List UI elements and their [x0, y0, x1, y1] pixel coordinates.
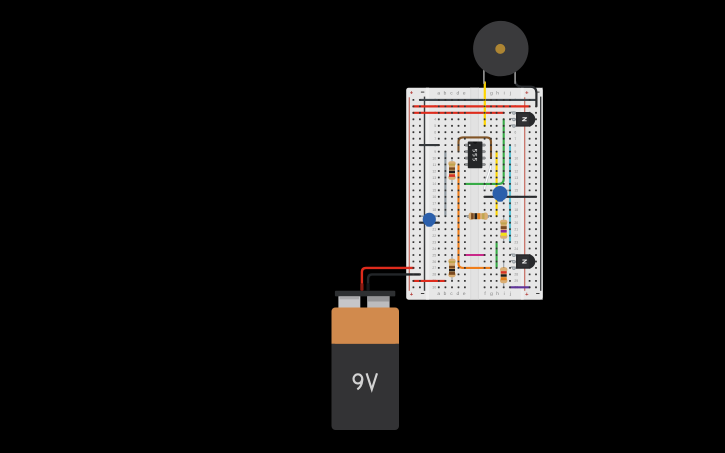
svg-text:22: 22: [432, 234, 436, 238]
svg-text:19: 19: [514, 215, 518, 219]
svg-text:26: 26: [432, 260, 436, 264]
svg-text:24: 24: [432, 247, 436, 251]
svg-text:14: 14: [514, 182, 518, 186]
svg-text:6: 6: [514, 131, 516, 135]
svg-text:15: 15: [432, 189, 436, 193]
svg-text:8: 8: [514, 143, 516, 147]
svg-text:29: 29: [514, 279, 518, 283]
svg-text:h: h: [496, 91, 499, 97]
svg-text:d: d: [456, 91, 459, 97]
svg-text:24: 24: [514, 247, 518, 251]
svg-text:10: 10: [432, 156, 436, 160]
svg-text:5: 5: [434, 124, 436, 128]
svg-text:13: 13: [432, 176, 436, 180]
svg-text:b: b: [444, 291, 447, 297]
svg-text:27: 27: [432, 266, 436, 270]
svg-text:23: 23: [514, 240, 518, 244]
svg-text:i: i: [504, 291, 505, 297]
svg-text:a: a: [437, 92, 440, 97]
svg-text:16: 16: [432, 195, 436, 199]
svg-text:17: 17: [432, 202, 436, 206]
svg-text:11: 11: [514, 163, 518, 167]
svg-text:23: 23: [432, 240, 436, 244]
svg-text:7: 7: [514, 137, 516, 141]
svg-text:21: 21: [514, 228, 518, 232]
svg-text:+: +: [410, 292, 414, 298]
svg-text:e: e: [463, 92, 466, 97]
svg-text:6: 6: [434, 131, 436, 135]
svg-text:i: i: [504, 91, 505, 97]
svg-text:14: 14: [432, 182, 436, 186]
svg-text:10: 10: [514, 156, 518, 160]
svg-text:+: +: [410, 90, 414, 96]
svg-text:9: 9: [434, 150, 436, 154]
svg-text:28: 28: [514, 273, 518, 277]
svg-text:30: 30: [432, 286, 436, 290]
svg-text:j: j: [509, 291, 511, 297]
svg-text:b: b: [444, 91, 447, 97]
svg-text:4: 4: [434, 118, 436, 122]
svg-text:22: 22: [514, 234, 518, 238]
svg-text:15: 15: [514, 189, 518, 193]
svg-text:e: e: [463, 292, 466, 297]
svg-text:a: a: [437, 292, 440, 297]
svg-text:28: 28: [432, 273, 436, 277]
svg-text:25: 25: [432, 253, 436, 257]
svg-text:17: 17: [514, 202, 518, 206]
svg-text:d: d: [456, 291, 459, 297]
svg-text:g: g: [490, 292, 493, 297]
svg-text:20: 20: [514, 221, 518, 225]
svg-text:13: 13: [514, 176, 518, 180]
svg-text:j: j: [509, 91, 511, 97]
svg-text:g: g: [490, 92, 493, 97]
svg-text:12: 12: [514, 169, 518, 173]
svg-text:7: 7: [434, 137, 436, 141]
svg-text:18: 18: [432, 208, 436, 212]
svg-text:18: 18: [514, 208, 518, 212]
svg-text:h: h: [496, 291, 499, 297]
svg-text:12: 12: [432, 169, 436, 173]
svg-text:9: 9: [514, 150, 516, 154]
svg-text:21: 21: [432, 228, 436, 232]
svg-text:11: 11: [433, 163, 437, 167]
